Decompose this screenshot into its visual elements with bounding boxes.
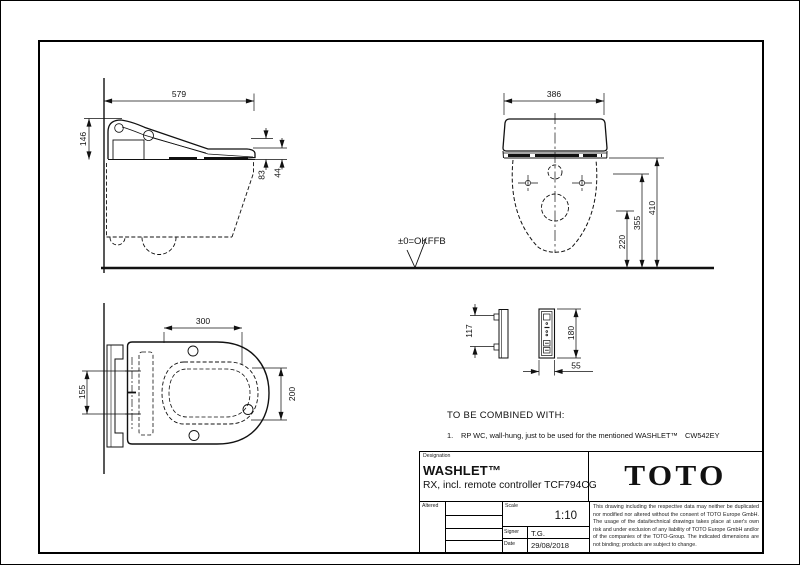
dim-plan-opening: 200 bbox=[287, 387, 297, 401]
disclaimer-cell: This drawing including the respective da… bbox=[590, 502, 762, 552]
product-name: WASHLET™ bbox=[423, 463, 585, 478]
date-value: 29/08/2018 bbox=[531, 541, 569, 550]
spray-icon bbox=[115, 124, 124, 133]
front-view bbox=[503, 93, 664, 268]
note-item-text: RP WC, wall-hung, just to be used for th… bbox=[461, 431, 678, 440]
altered-label: Altered bbox=[422, 503, 443, 509]
dim-front-width: 386 bbox=[547, 89, 561, 99]
dim-front-h3: 220 bbox=[617, 235, 627, 249]
dim-front-h1: 410 bbox=[647, 201, 657, 215]
signer-row: Signer T.G. bbox=[503, 527, 589, 539]
notes-heading: TO BE COMBINED WITH: bbox=[447, 410, 763, 421]
mounting-plate bbox=[107, 345, 123, 447]
toto-logo: TOTO bbox=[624, 460, 726, 493]
product-description: RX, incl. remote controller TCF794CG bbox=[423, 480, 585, 491]
dim-remote-pitch: 117 bbox=[464, 324, 474, 338]
dim-side-height: 146 bbox=[78, 132, 88, 146]
revision-divider bbox=[446, 540, 502, 541]
title-block-row2: Altered Scale 1:10 Signer T.G. Date 29/0… bbox=[420, 502, 762, 552]
scale-signer-date-cells: Scale 1:10 Signer T.G. Date 29/08/2018 bbox=[503, 502, 590, 552]
wc-front-dashed bbox=[512, 160, 597, 252]
notes-block: TO BE COMBINED WITH: 1.RP WC, wall-hung,… bbox=[447, 410, 763, 440]
dim-front-h2: 355 bbox=[632, 216, 642, 230]
wc-outline-dashed bbox=[107, 162, 254, 255]
datum-symbol bbox=[407, 250, 415, 268]
date-label: Date bbox=[503, 539, 528, 552]
scale-value: 1:10 bbox=[555, 510, 577, 522]
signer-label: Signer bbox=[503, 527, 528, 538]
revision-divider bbox=[446, 515, 502, 516]
dim-remote-height: 180 bbox=[566, 326, 576, 340]
designation-cell: Designation WASHLET™ RX, incl. remote co… bbox=[420, 452, 589, 501]
date-row: Date 29/08/2018 bbox=[503, 539, 589, 552]
floor-datum-label: ±0=OKFFB bbox=[398, 236, 446, 247]
title-block-row1: Designation WASHLET™ RX, incl. remote co… bbox=[420, 452, 762, 502]
disclaimer-text: This drawing including the respective da… bbox=[593, 504, 759, 549]
dim-remote-width: 55 bbox=[571, 361, 581, 371]
revision-rows bbox=[446, 502, 503, 552]
designation-label: Designation bbox=[423, 453, 585, 459]
dim-side-h2: 44 bbox=[273, 168, 283, 178]
note-item: 1.RP WC, wall-hung, just to be used for … bbox=[447, 431, 763, 440]
brand-logo-cell: TOTO bbox=[589, 452, 762, 501]
signer-value: T.G. bbox=[531, 529, 545, 538]
dim-plan-pitch: 155 bbox=[77, 385, 87, 399]
plan-view bbox=[82, 303, 287, 474]
scale-cell: Scale 1:10 bbox=[503, 502, 589, 527]
scale-label: Scale bbox=[505, 503, 587, 509]
note-item-number: 1. bbox=[447, 431, 461, 440]
altered-cell: Altered bbox=[420, 502, 446, 552]
remote-buttons bbox=[544, 314, 551, 353]
note-item-code: CW542EY bbox=[685, 431, 720, 440]
dim-side-width: 579 bbox=[172, 89, 186, 99]
drawing-sheet: 579 146 83 44 ±0=OKFFB bbox=[0, 0, 800, 565]
title-block: Designation WASHLET™ RX, incl. remote co… bbox=[419, 451, 763, 553]
dim-plan-depth: 300 bbox=[196, 316, 210, 326]
seat-outline bbox=[128, 342, 270, 444]
revision-divider bbox=[446, 528, 502, 529]
dim-side-h1: 83 bbox=[257, 170, 267, 180]
